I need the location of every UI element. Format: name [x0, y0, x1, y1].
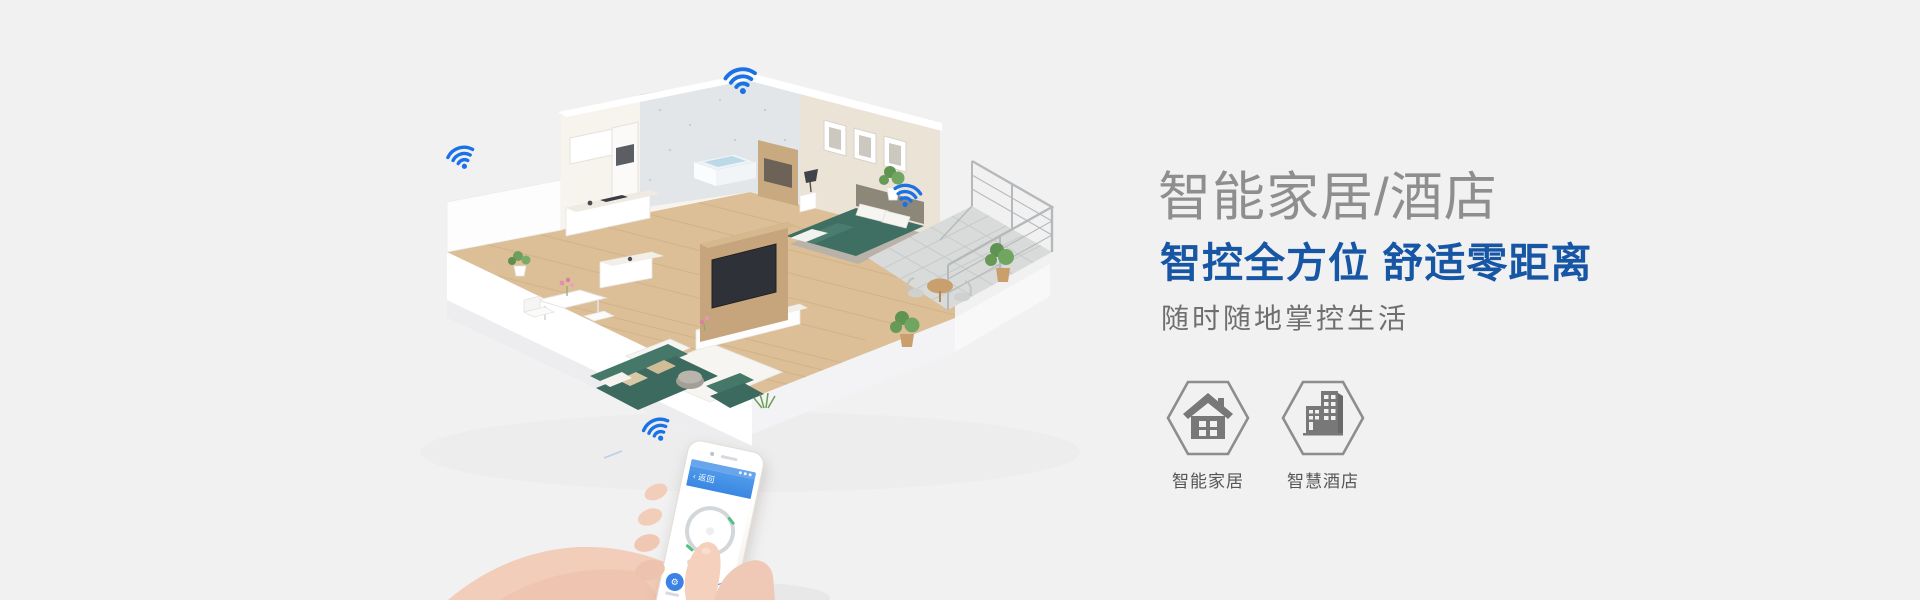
phone-button-row: ⚙ ☼ ⚙	[663, 571, 732, 600]
hand-forearm	[448, 547, 830, 600]
dial-green-mark	[727, 516, 735, 525]
headline-block: 智能家居/酒店 智控全方位 舒适零距离 随时随地掌控生活	[1158, 170, 1592, 492]
feature-card-smart-hotel[interactable]: 智慧酒店	[1281, 380, 1365, 492]
wardrobe	[758, 140, 798, 206]
headline-title: 智能家居/酒店	[1158, 170, 1592, 226]
house-icon	[1183, 393, 1233, 439]
wifi-icon-kitchen	[446, 144, 477, 173]
feature-card-smart-home[interactable]: 智能家居	[1166, 380, 1250, 492]
settings-button-icon: ⚙	[712, 581, 732, 600]
headline-subtitle: 智控全方位 舒适零距离	[1160, 243, 1592, 284]
phone-dial-control	[680, 502, 739, 561]
light-button-icon: ☼	[689, 576, 709, 596]
headline-tagline: 随时随地掌控生活	[1161, 305, 1592, 333]
hexagon-house-icon	[1166, 380, 1250, 456]
house-illustration	[0, 0, 1920, 600]
button-caption-bar	[689, 595, 703, 600]
feature-row: 智能家居	[1166, 380, 1592, 492]
dial-center	[705, 526, 714, 535]
phone-speaker	[721, 455, 738, 461]
feature-label: 智能家居	[1172, 467, 1244, 492]
back-button: 返回	[696, 468, 717, 491]
phone-camera-dot	[710, 452, 715, 457]
dial-caption-bar	[687, 559, 719, 571]
feature-label: 智慧酒店	[1287, 467, 1359, 492]
dial-green-mark	[685, 544, 694, 552]
hexagon-building-icon	[1281, 380, 1365, 456]
hero-banner: ‹ 返回 ⚙ ☼ ⚙	[0, 0, 1920, 600]
building-icon	[1303, 391, 1343, 436]
button-caption-bar	[665, 591, 679, 597]
power-button-icon: ⚙	[664, 571, 685, 592]
